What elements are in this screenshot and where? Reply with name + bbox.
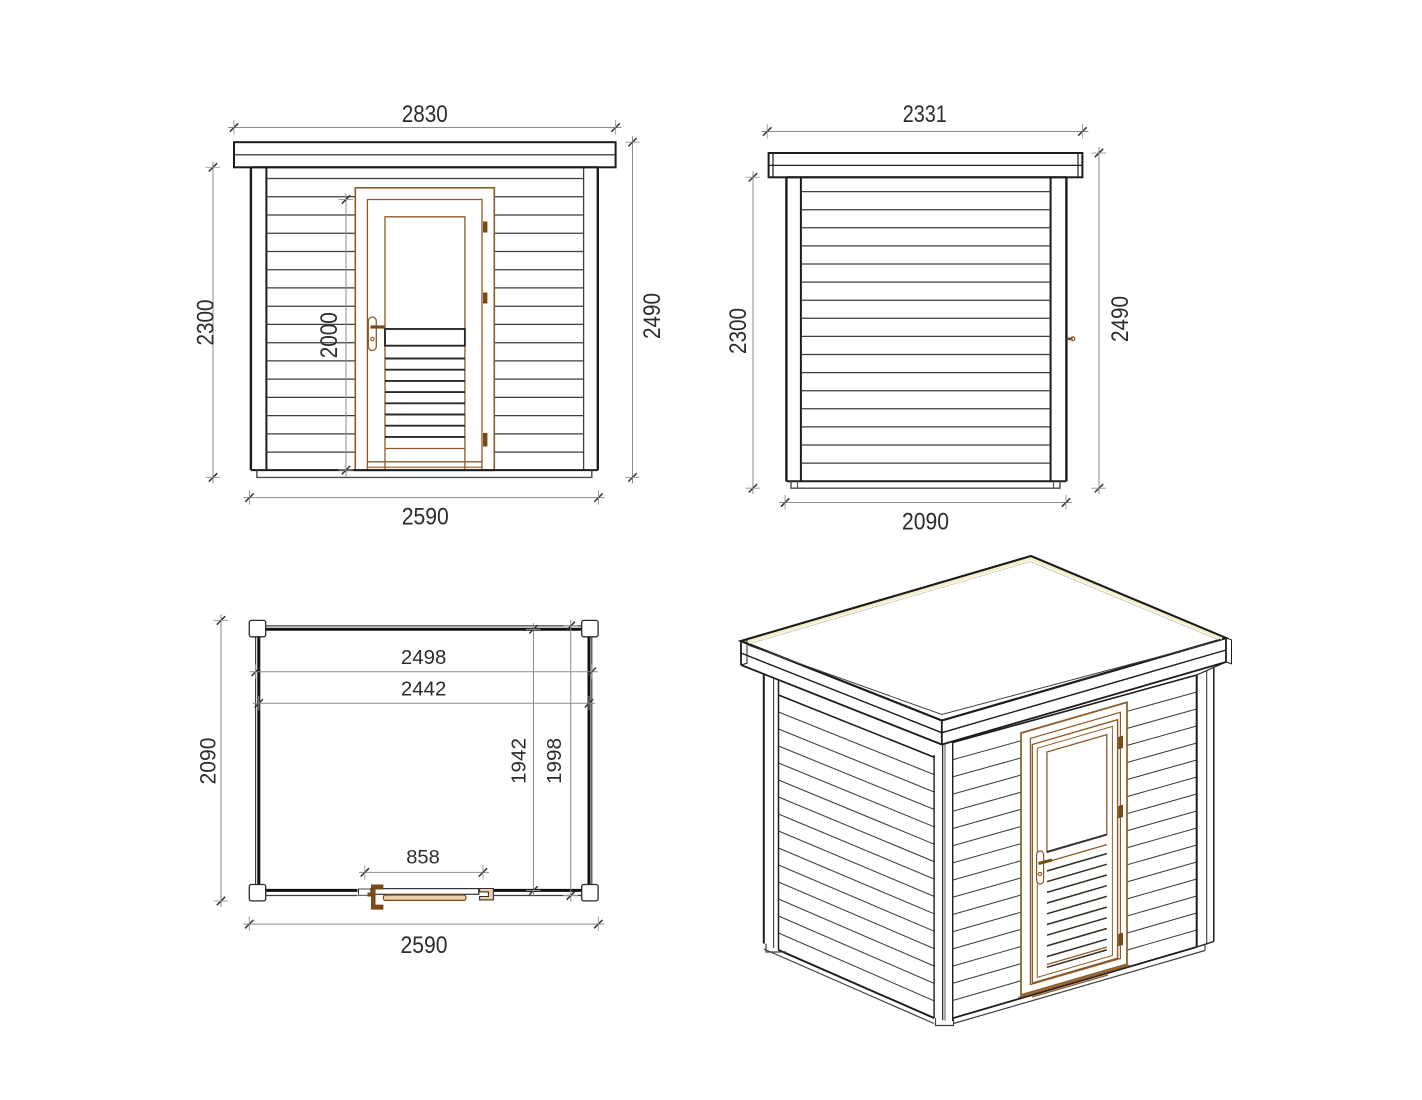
svg-text:2590: 2590	[402, 503, 449, 530]
svg-text:1998: 1998	[544, 738, 566, 784]
svg-text:2331: 2331	[903, 101, 947, 128]
svg-text:2498: 2498	[401, 647, 447, 669]
svg-text:1942: 1942	[508, 738, 530, 784]
svg-text:858: 858	[406, 848, 440, 869]
svg-text:2000: 2000	[316, 312, 343, 358]
svg-text:2442: 2442	[401, 679, 447, 701]
svg-text:2300: 2300	[193, 300, 220, 346]
svg-text:2830: 2830	[402, 101, 448, 128]
svg-text:2300: 2300	[725, 308, 752, 354]
svg-text:2490: 2490	[639, 293, 666, 339]
svg-text:2090: 2090	[902, 509, 949, 536]
svg-text:2090: 2090	[196, 738, 221, 785]
svg-text:2590: 2590	[401, 932, 448, 959]
svg-text:2490: 2490	[1107, 296, 1134, 342]
